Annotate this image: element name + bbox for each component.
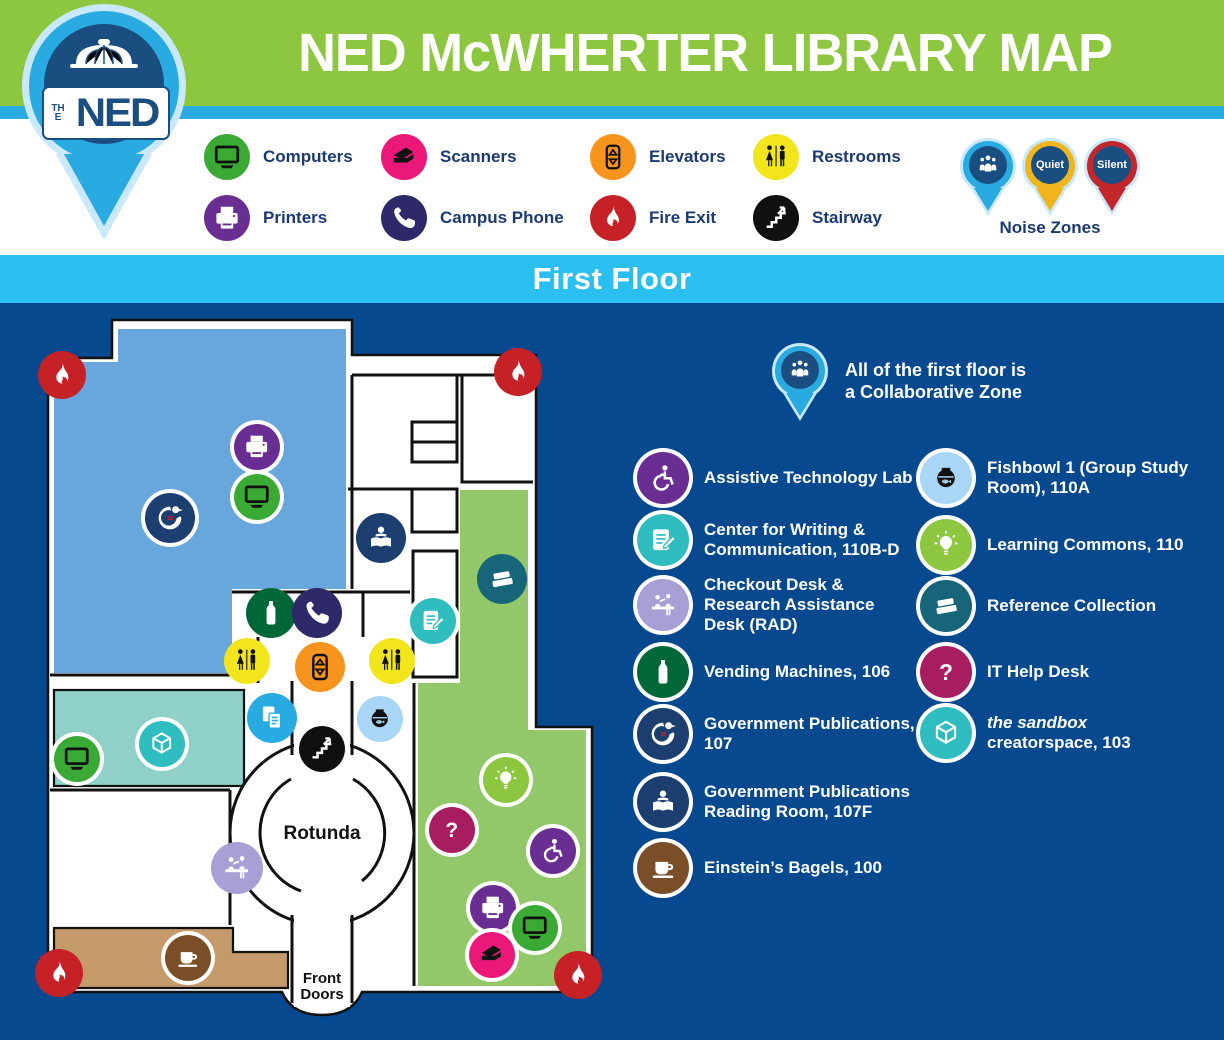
- noise-zones-title: Noise Zones: [952, 218, 1148, 238]
- learning-commons-icon: [483, 757, 529, 803]
- learning-commons-icon: [920, 519, 972, 571]
- legend-item-scanners: Scanners: [381, 134, 517, 180]
- reference-collection-icon: [477, 554, 527, 604]
- location-learning-commons: Learning Commons, 110: [920, 519, 1217, 571]
- location-gov-pub-reading-room: Government Publications Reading Room, 10…: [637, 776, 914, 828]
- floor-banner-label: First Floor: [533, 261, 692, 297]
- logo-ned-text: NED: [63, 91, 170, 136]
- printer-icon: [234, 424, 280, 470]
- printers-icon: [204, 195, 250, 241]
- silent-zone-pin: Silent: [1084, 138, 1140, 222]
- rotunda-label: Rotunda: [262, 823, 382, 845]
- reference-collection-icon: [920, 580, 972, 632]
- stairway-icon: [753, 195, 799, 241]
- location-government-publications: Government Publications, 107: [637, 708, 919, 760]
- ned-wordmark: THE NED: [42, 86, 170, 140]
- location-einsteins-bagels: Einstein’s Bagels, 100: [637, 842, 924, 894]
- restrooms-icon: [369, 638, 415, 684]
- reading-room-icon: [356, 513, 406, 563]
- einsteins-bagels-icon: [165, 935, 211, 981]
- scanners-icon: [381, 134, 427, 180]
- campus-phone-icon: [381, 195, 427, 241]
- fire-exit-icon: [35, 949, 83, 997]
- computers-icon: [204, 134, 250, 180]
- the-ned-logo: THE NED: [18, 4, 190, 244]
- legend-item-campus-phone: Campus Phone: [381, 195, 564, 241]
- legend-item-stairway: Stairway: [753, 195, 882, 241]
- location-checkout-desk: Checkout Desk & Research Assistance Desk…: [637, 575, 889, 635]
- collaborative-people-icon: [969, 146, 1007, 184]
- library-map-page: { "header": { "title": "NED McWHERTER LI…: [0, 0, 1224, 1040]
- quiet-zone-pin: Quiet: [1022, 138, 1078, 222]
- legend-item-printers: Printers: [204, 195, 327, 241]
- vending-machines-icon: [246, 588, 296, 638]
- assistive-technology-icon: [530, 828, 576, 874]
- reading-room-icon: [637, 776, 689, 828]
- writing-center-icon: [410, 598, 456, 644]
- elevators-icon: [295, 642, 345, 692]
- elevators-icon: [590, 134, 636, 180]
- silent-zone-label: Silent: [1093, 146, 1131, 184]
- fire-exit-icon: [494, 348, 542, 396]
- assistive-technology-icon: [637, 452, 689, 504]
- writing-center-icon: [637, 514, 689, 566]
- page-title: NED McWHERTER LIBRARY MAP: [210, 22, 1199, 84]
- legend-item-restrooms: Restrooms: [753, 134, 901, 180]
- fishbowl-icon: [357, 696, 403, 742]
- scanner-icon: [469, 932, 515, 978]
- it-help-desk-icon: [429, 807, 475, 853]
- it-help-desk-icon: [920, 646, 972, 698]
- sandbox-icon: [920, 707, 972, 759]
- location-writing-center: Center for Writing & Communication, 110B…: [637, 514, 909, 566]
- legend-item-computers: Computers: [204, 134, 353, 180]
- computer-icon: [54, 736, 100, 782]
- location-fishbowl: Fishbowl 1 (Group Study Room), 110A: [920, 452, 1202, 504]
- collaborative-zone-map-pin: [772, 343, 828, 427]
- location-assistive-technology: Assistive Technology Lab: [637, 452, 924, 504]
- fire-exit-icon: [38, 351, 86, 399]
- computer-icon: [512, 905, 558, 951]
- sandbox-icon: [139, 721, 185, 767]
- legend-item-fire-exit: Fire Exit: [590, 195, 716, 241]
- quiet-zone-label: Quiet: [1031, 146, 1069, 184]
- fire-exit-icon: [554, 951, 602, 999]
- campus-phone-icon: [292, 588, 342, 638]
- printer-icon: [470, 885, 516, 931]
- legend-item-elevators: Elevators: [590, 134, 726, 180]
- location-sandbox-creatorspace: the sandbox creatorspace, 103: [920, 707, 1217, 759]
- location-reference-collection: Reference Collection: [920, 580, 1217, 632]
- collaborative-people-icon: [781, 351, 819, 389]
- location-vending-machines: Vending Machines, 106: [637, 646, 924, 698]
- restrooms-icon: [753, 134, 799, 180]
- government-publications-icon: [637, 708, 689, 760]
- front-doors-label: Front Doors: [290, 971, 354, 1003]
- einsteins-bagels-icon: [637, 842, 689, 894]
- floor-banner: First Floor: [0, 255, 1224, 303]
- first-floor-map: Rotunda Front Doors All of the first flo…: [0, 303, 1224, 1040]
- photocopier-icon: [247, 693, 297, 743]
- vending-machines-icon: [637, 646, 689, 698]
- checkout-desk-icon: [637, 579, 689, 631]
- collaborative-zone-note: All of the first floor is a Collaborativ…: [845, 359, 1026, 403]
- fishbowl-icon: [920, 452, 972, 504]
- restrooms-icon: [224, 638, 270, 684]
- computer-icon: [234, 474, 280, 520]
- fire-exit-icon: [590, 195, 636, 241]
- checkout-desk-icon: [211, 842, 263, 894]
- location-it-help-desk: IT Help Desk: [920, 646, 1217, 698]
- government-publications-icon: [145, 493, 195, 543]
- library-dome-icon: [66, 38, 142, 70]
- collaborative-zone-pin: [960, 138, 1016, 222]
- stairway-icon: [299, 726, 345, 772]
